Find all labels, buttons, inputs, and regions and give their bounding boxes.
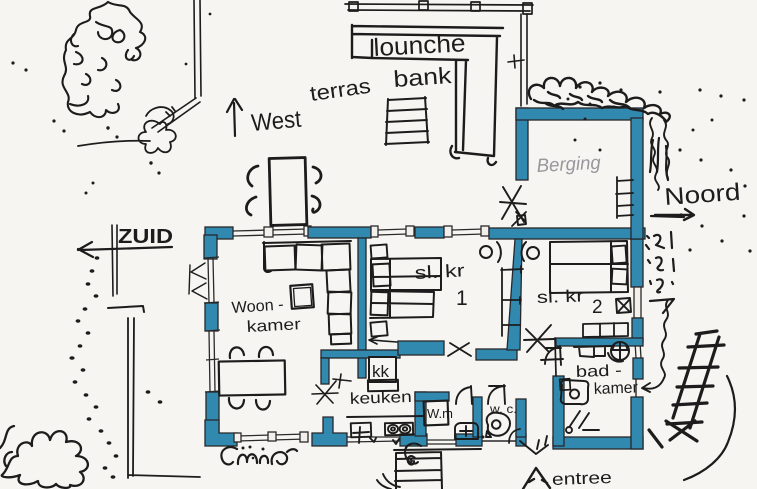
- svg-text:w. c.: w. c.: [489, 402, 517, 416]
- svg-text:Noord: Noord: [664, 179, 742, 211]
- svg-text:Woon -: Woon -: [231, 296, 284, 317]
- svg-text:ZUID: ZUID: [118, 226, 173, 248]
- svg-text:bad -: bad -: [576, 362, 623, 381]
- svg-text:2: 2: [592, 297, 603, 318]
- svg-text:keuken: keuken: [350, 389, 413, 408]
- svg-text:Berging: Berging: [536, 153, 601, 177]
- svg-text:West: West: [250, 106, 302, 137]
- svg-text:sl. kr: sl. kr: [414, 260, 465, 283]
- svg-text:kamer: kamer: [246, 316, 302, 336]
- svg-text:1: 1: [456, 287, 468, 310]
- svg-text:sl. kr: sl. kr: [536, 286, 584, 307]
- svg-text:kk: kk: [372, 362, 390, 381]
- svg-text:bank: bank: [393, 62, 453, 92]
- svg-text:lounche: lounche: [373, 29, 466, 62]
- svg-text:entree: entree: [552, 468, 613, 489]
- svg-text:W.m: W.m: [427, 407, 453, 421]
- svg-text:kamer: kamer: [594, 379, 639, 398]
